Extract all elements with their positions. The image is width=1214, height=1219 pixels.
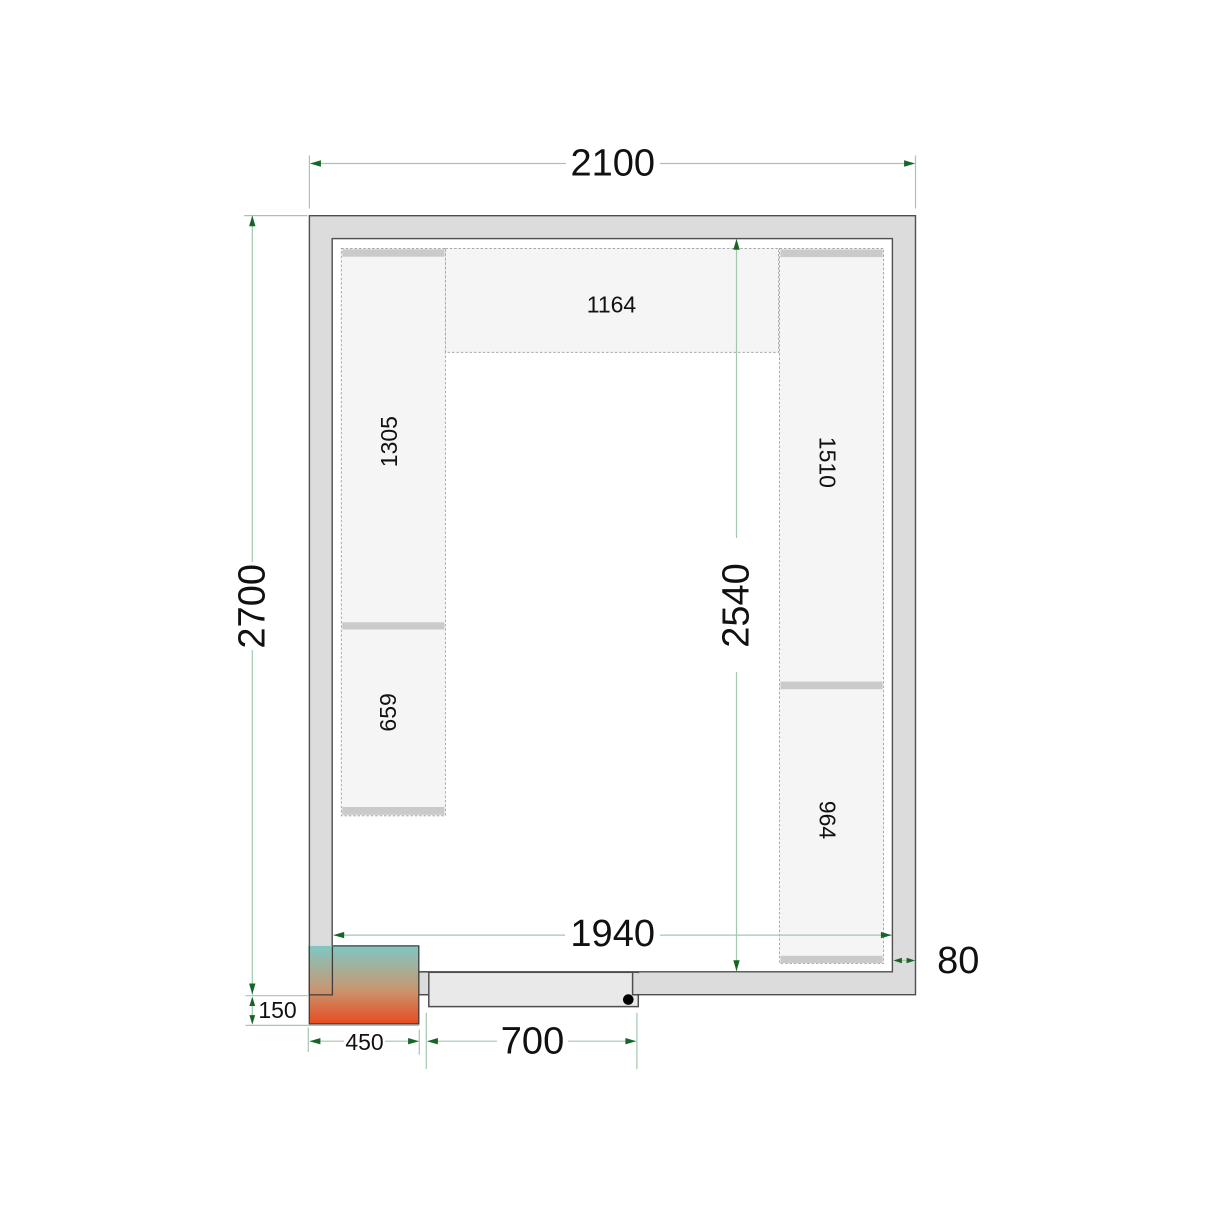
svg-text:1940: 1940 xyxy=(570,913,655,955)
svg-text:450: 450 xyxy=(345,1029,383,1055)
svg-text:964: 964 xyxy=(815,801,841,840)
svg-text:2540: 2540 xyxy=(716,563,758,648)
svg-text:700: 700 xyxy=(501,1021,564,1063)
svg-text:659: 659 xyxy=(375,693,401,731)
svg-text:1510: 1510 xyxy=(815,437,841,488)
svg-text:80: 80 xyxy=(937,940,979,982)
svg-text:2100: 2100 xyxy=(571,143,656,185)
svg-text:150: 150 xyxy=(258,997,296,1023)
svg-text:1305: 1305 xyxy=(376,416,402,467)
svg-text:2700: 2700 xyxy=(232,564,274,649)
svg-text:1164: 1164 xyxy=(587,291,637,317)
